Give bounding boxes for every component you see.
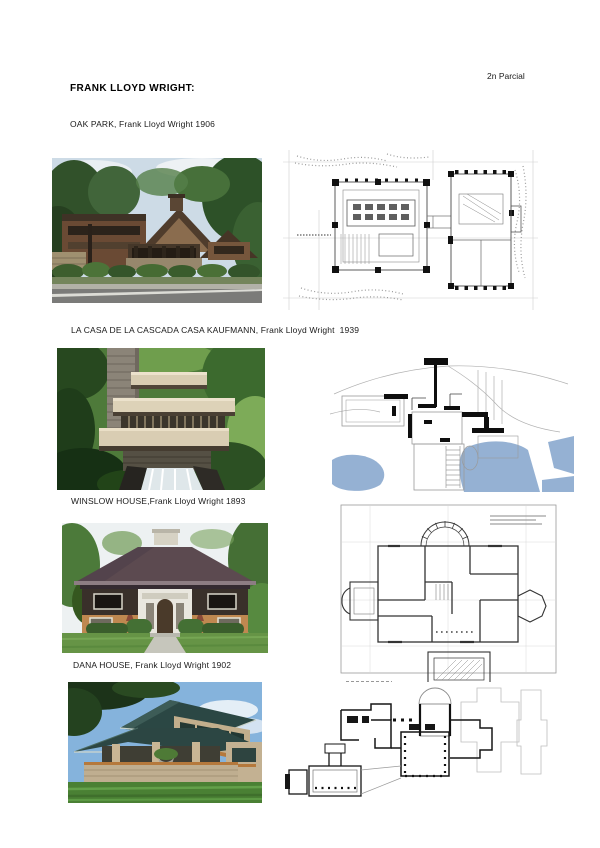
winslow-house-photo-image <box>62 523 268 653</box>
dana-house-floor-plan-image <box>283 682 550 808</box>
caption-casa-kaufmann: LA CASA DE LA CASCADA CASA KAUFMANN, Fra… <box>71 325 359 335</box>
corner-note: 2n Parcial <box>487 71 525 81</box>
caption-oak-park: OAK PARK, Frank Lloyd Wright 1906 <box>70 119 215 129</box>
oak-park-photo <box>52 158 262 303</box>
fallingwater-floor-plan-image <box>328 354 574 492</box>
oak-park-floor-plan <box>283 150 538 310</box>
winslow-house-floor-plan <box>340 504 558 694</box>
winslow-house-photo <box>62 523 268 653</box>
caption-winslow-house: WINSLOW HOUSE,Frank Lloyd Wright 1893 <box>71 496 246 506</box>
page-title: FRANK LLOYD WRIGHT: <box>70 83 195 94</box>
dana-house-floor-plan <box>283 682 550 808</box>
winslow-house-floor-plan-image <box>340 504 558 694</box>
oak-park-floor-plan-image <box>283 150 538 310</box>
caption-dana-house: DANA HOUSE, Frank Lloyd Wright 1902 <box>73 660 231 670</box>
fallingwater-floor-plan <box>328 354 574 492</box>
document-page: 2n Parcial FRANK LLOYD WRIGHT: OAK PARK,… <box>0 0 600 848</box>
dana-house-photo-image <box>68 682 262 803</box>
oak-park-photo-image <box>52 158 262 303</box>
fallingwater-photo-image <box>57 348 265 490</box>
fallingwater-photo <box>57 348 265 490</box>
dana-house-photo <box>68 682 262 803</box>
